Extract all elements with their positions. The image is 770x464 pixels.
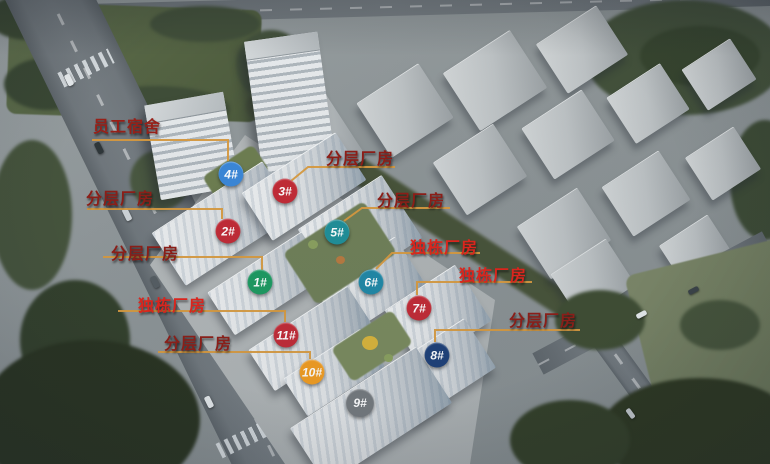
building-badge-1: 1# bbox=[248, 270, 273, 295]
badge-label: 1# bbox=[253, 275, 266, 289]
building-badge-11: 11# bbox=[274, 323, 299, 348]
label-tiered-factory-2: 分层厂房 bbox=[111, 240, 179, 264]
label-tiered-factory-right: 分层厂房 bbox=[509, 307, 577, 331]
building-badge-6: 6# bbox=[359, 270, 384, 295]
building-badge-9: 9# bbox=[346, 389, 374, 417]
massing-block bbox=[433, 123, 528, 215]
label-tiered-factory-1: 分层厂房 bbox=[86, 185, 154, 209]
aerial-site-rendering: 员工宿舍 分层厂房 分层厂房 独栋厂房 分层厂房 分层厂房 分层厂房 独栋厂房 … bbox=[0, 0, 770, 464]
badge-label: 10# bbox=[302, 365, 322, 379]
massing-block bbox=[521, 89, 615, 179]
tree bbox=[336, 256, 345, 264]
playground bbox=[362, 336, 378, 350]
tree bbox=[384, 354, 393, 362]
badge-label: 4# bbox=[224, 167, 237, 181]
tree-cluster bbox=[680, 300, 760, 350]
building-badge-5: 5# bbox=[325, 220, 350, 245]
label-tiered-factory-top-2: 分层厂房 bbox=[377, 187, 445, 211]
tree-cluster bbox=[150, 6, 260, 42]
label-staff-dormitory: 员工宿舍 bbox=[93, 113, 161, 137]
label-standalone-factory-left: 独栋厂房 bbox=[138, 292, 206, 316]
building-badge-4: 4# bbox=[219, 162, 244, 187]
tree-cluster bbox=[0, 140, 72, 290]
building-badge-8: 8# bbox=[425, 343, 450, 368]
building-badge-2: 2# bbox=[216, 219, 241, 244]
tree-cluster bbox=[0, 340, 200, 464]
badge-label: 6# bbox=[364, 275, 377, 289]
massing-block bbox=[356, 63, 453, 158]
label-tiered-factory-top-1: 分层厂房 bbox=[326, 145, 394, 169]
badge-label: 11# bbox=[276, 328, 295, 342]
badge-label: 9# bbox=[353, 396, 366, 410]
badge-label: 5# bbox=[330, 225, 343, 239]
building-badge-3: 3# bbox=[273, 179, 298, 204]
tree bbox=[308, 240, 318, 249]
badge-label: 2# bbox=[221, 224, 234, 238]
massing-block bbox=[601, 150, 690, 237]
label-tiered-factory-3: 分层厂房 bbox=[164, 330, 232, 354]
badge-label: 3# bbox=[278, 184, 291, 198]
badge-label: 8# bbox=[430, 348, 443, 362]
badge-label: 7# bbox=[412, 301, 425, 315]
massing-block bbox=[443, 30, 548, 131]
building-badge-7: 7# bbox=[407, 296, 432, 321]
label-standalone-factory-top: 独栋厂房 bbox=[410, 234, 478, 258]
building-badge-10: 10# bbox=[300, 360, 325, 385]
label-standalone-factory-mid: 独栋厂房 bbox=[459, 262, 527, 286]
